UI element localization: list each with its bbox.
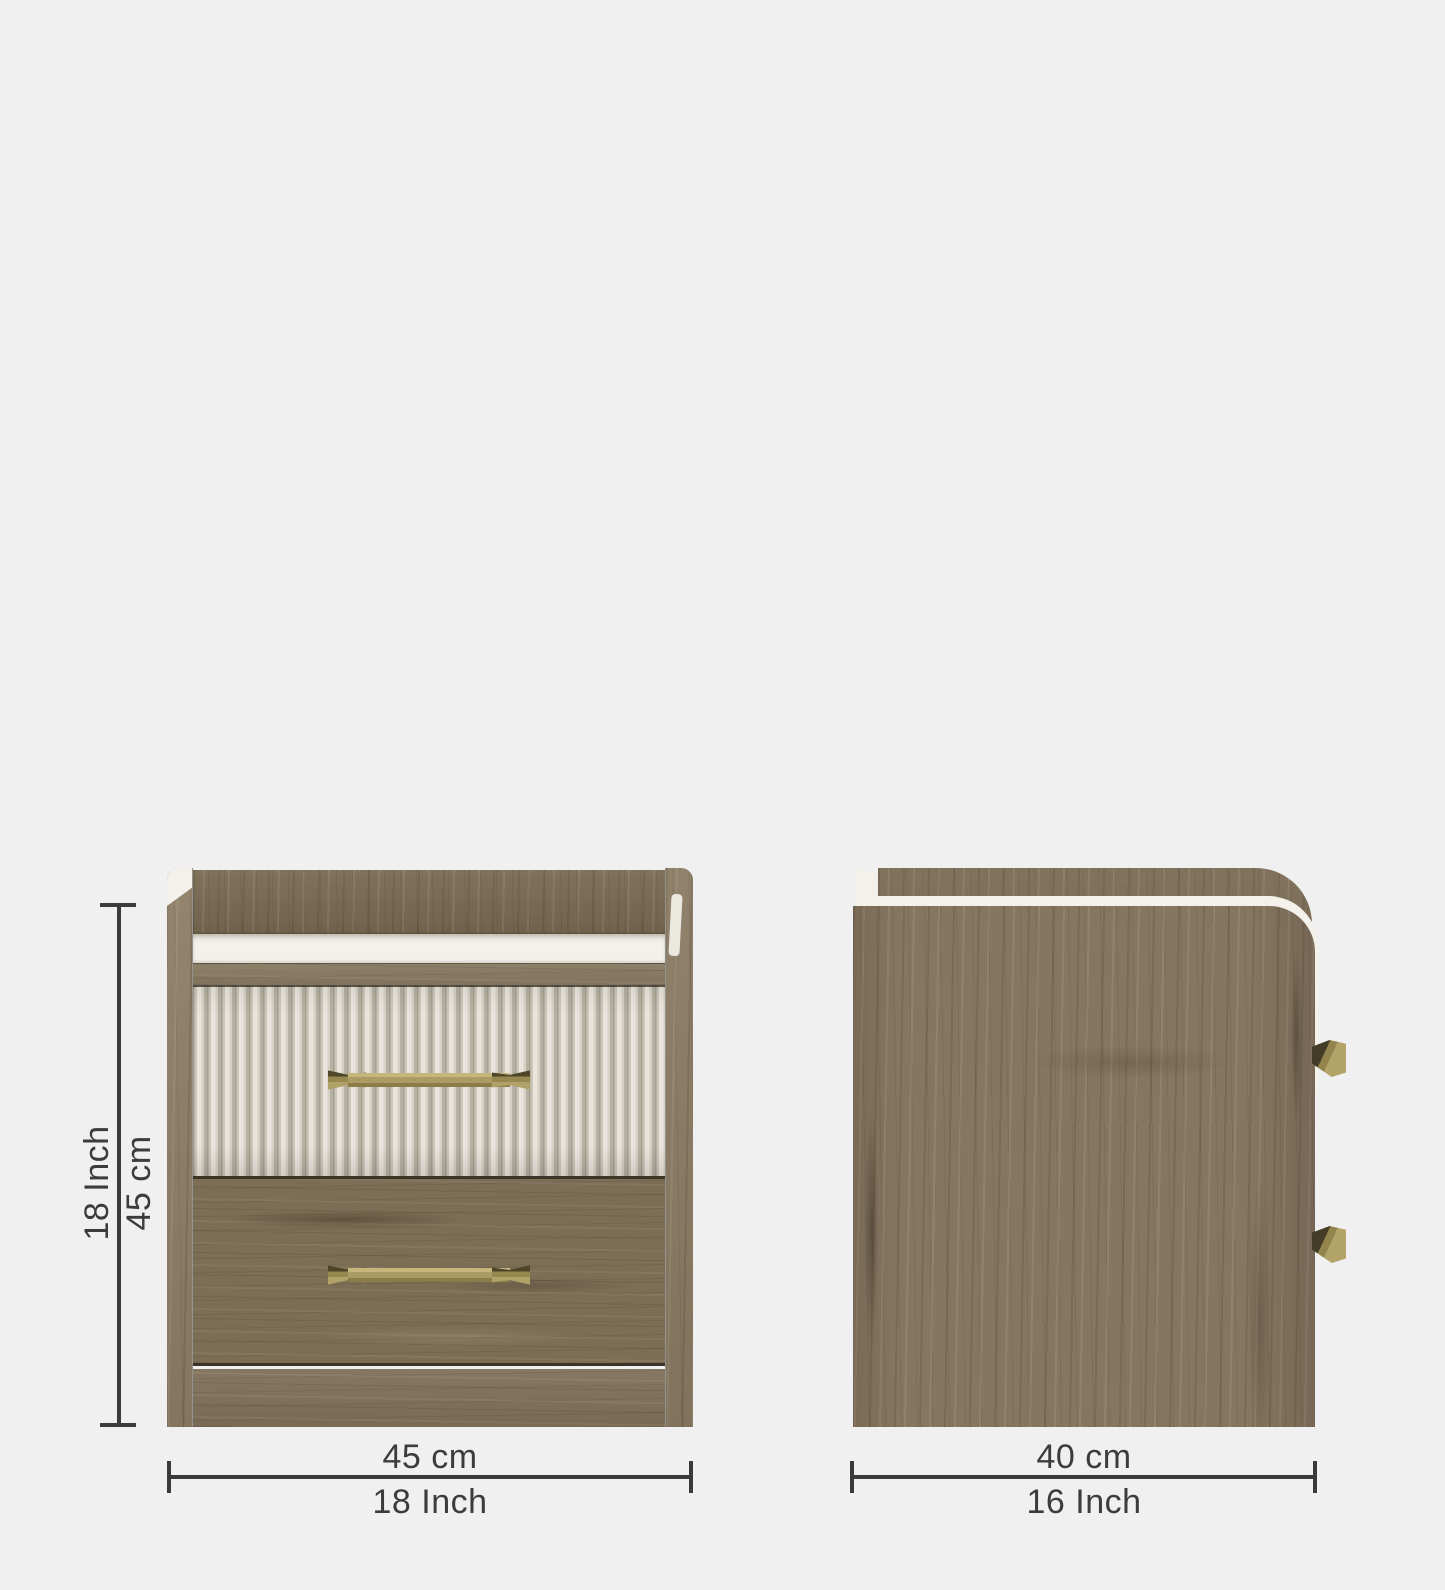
height-label-cm: 45 cm [120,1033,158,1333]
height-dimension-top-cap [100,903,136,907]
depth-label-inch: 16 Inch [934,1483,1234,1521]
front-top-edge-band [193,963,665,985]
width-dimension-right-cap [689,1461,693,1493]
depth-dimension-left-cap [850,1461,854,1493]
front-left-leg [167,868,192,1427]
width-label-inch: 18 Inch [280,1483,580,1521]
front-inner-column [192,868,666,1427]
handle-bar [348,1268,510,1282]
handle-bar [348,1073,510,1087]
front-top-surface [193,934,665,963]
side-view [853,862,1331,1427]
depth-label-cm: 40 cm [934,1438,1234,1476]
width-dimension-left-cap [167,1461,171,1493]
side-lower-handle-profile [1312,1226,1346,1263]
width-label-cm: 45 cm [280,1438,580,1476]
front-base-rail [193,1369,665,1427]
front-top-rail [193,870,665,934]
side-panel [853,906,1315,1427]
front-upper-drawer-handle [328,1069,530,1091]
side-top-white-corner-strip [856,868,876,906]
depth-dimension-right-cap [1313,1461,1317,1493]
front-lower-drawer-handle [328,1264,530,1286]
height-dimension-bottom-cap [100,1423,136,1427]
product-dimension-diagram: 18 Inch 45 cm 45 cm 18 Inch 40 cm 16 Inc… [0,0,1445,1590]
height-label-inch: 18 Inch [78,1033,116,1333]
front-view [167,868,693,1427]
